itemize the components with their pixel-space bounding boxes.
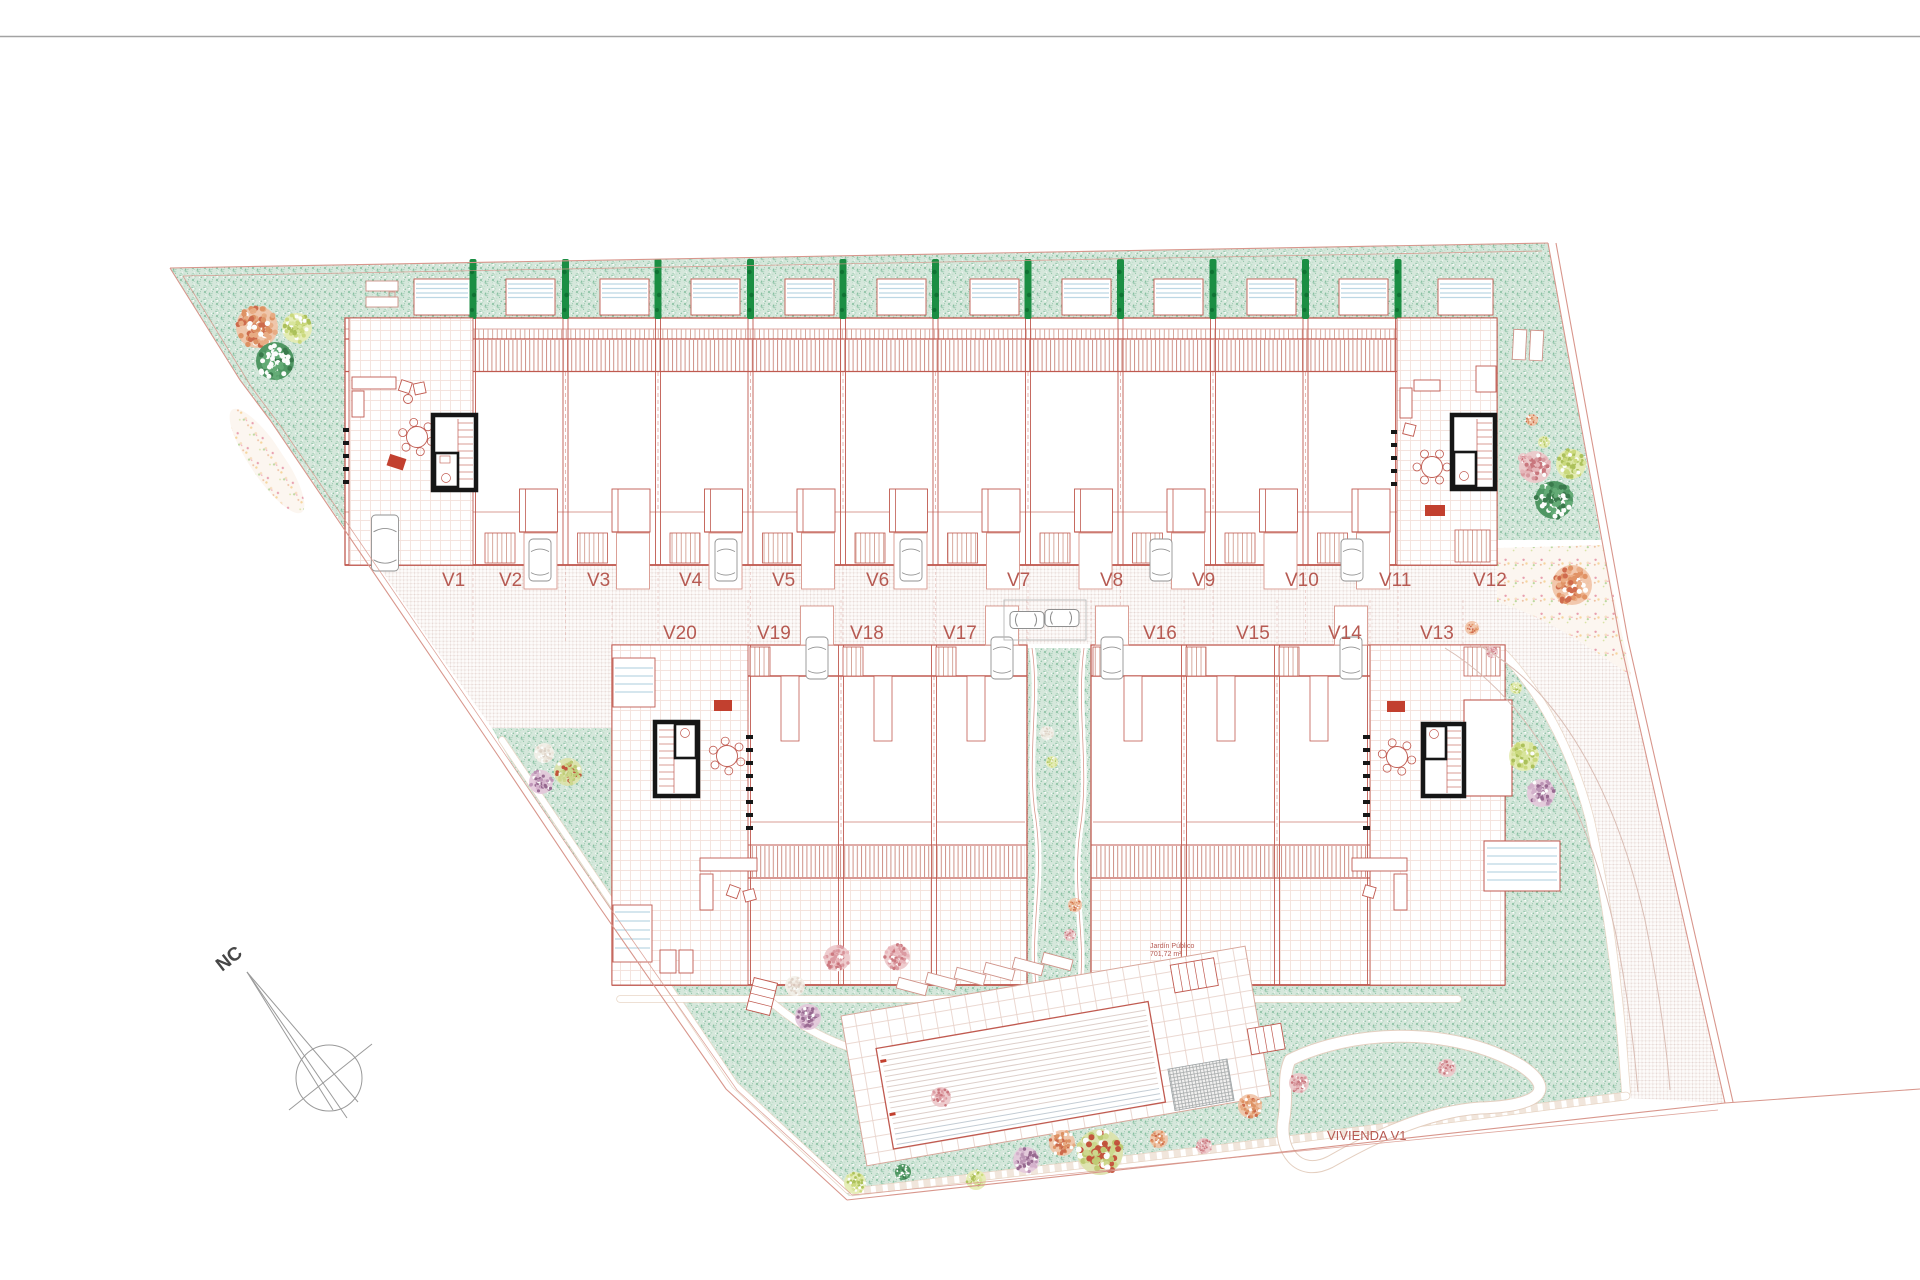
svg-text:V7: V7	[1007, 570, 1030, 591]
svg-text:V1: V1	[442, 570, 465, 591]
svg-text:V3: V3	[587, 570, 610, 591]
svg-text:V17: V17	[943, 623, 977, 644]
svg-text:V4: V4	[679, 570, 703, 591]
svg-text:VIVIENDA V1: VIVIENDA V1	[1327, 1128, 1406, 1143]
svg-text:V13: V13	[1420, 623, 1454, 644]
svg-text:V18: V18	[850, 623, 884, 644]
svg-text:V20: V20	[663, 623, 697, 644]
svg-text:V11: V11	[1379, 570, 1411, 591]
svg-text:701,72 m²: 701,72 m²	[1150, 951, 1182, 958]
svg-text:V15: V15	[1236, 623, 1270, 644]
svg-text:V8: V8	[1100, 570, 1123, 591]
svg-text:Jardín Público: Jardín Público	[1150, 943, 1194, 950]
svg-text:V6: V6	[866, 570, 889, 591]
svg-text:V10: V10	[1285, 570, 1319, 591]
svg-text:V2: V2	[499, 570, 522, 591]
svg-text:V14: V14	[1328, 623, 1362, 644]
svg-text:V19: V19	[757, 623, 791, 644]
svg-text:V9: V9	[1192, 570, 1215, 591]
svg-text:V5: V5	[772, 570, 795, 591]
svg-text:V16: V16	[1143, 623, 1177, 644]
svg-text:V12: V12	[1473, 570, 1507, 591]
